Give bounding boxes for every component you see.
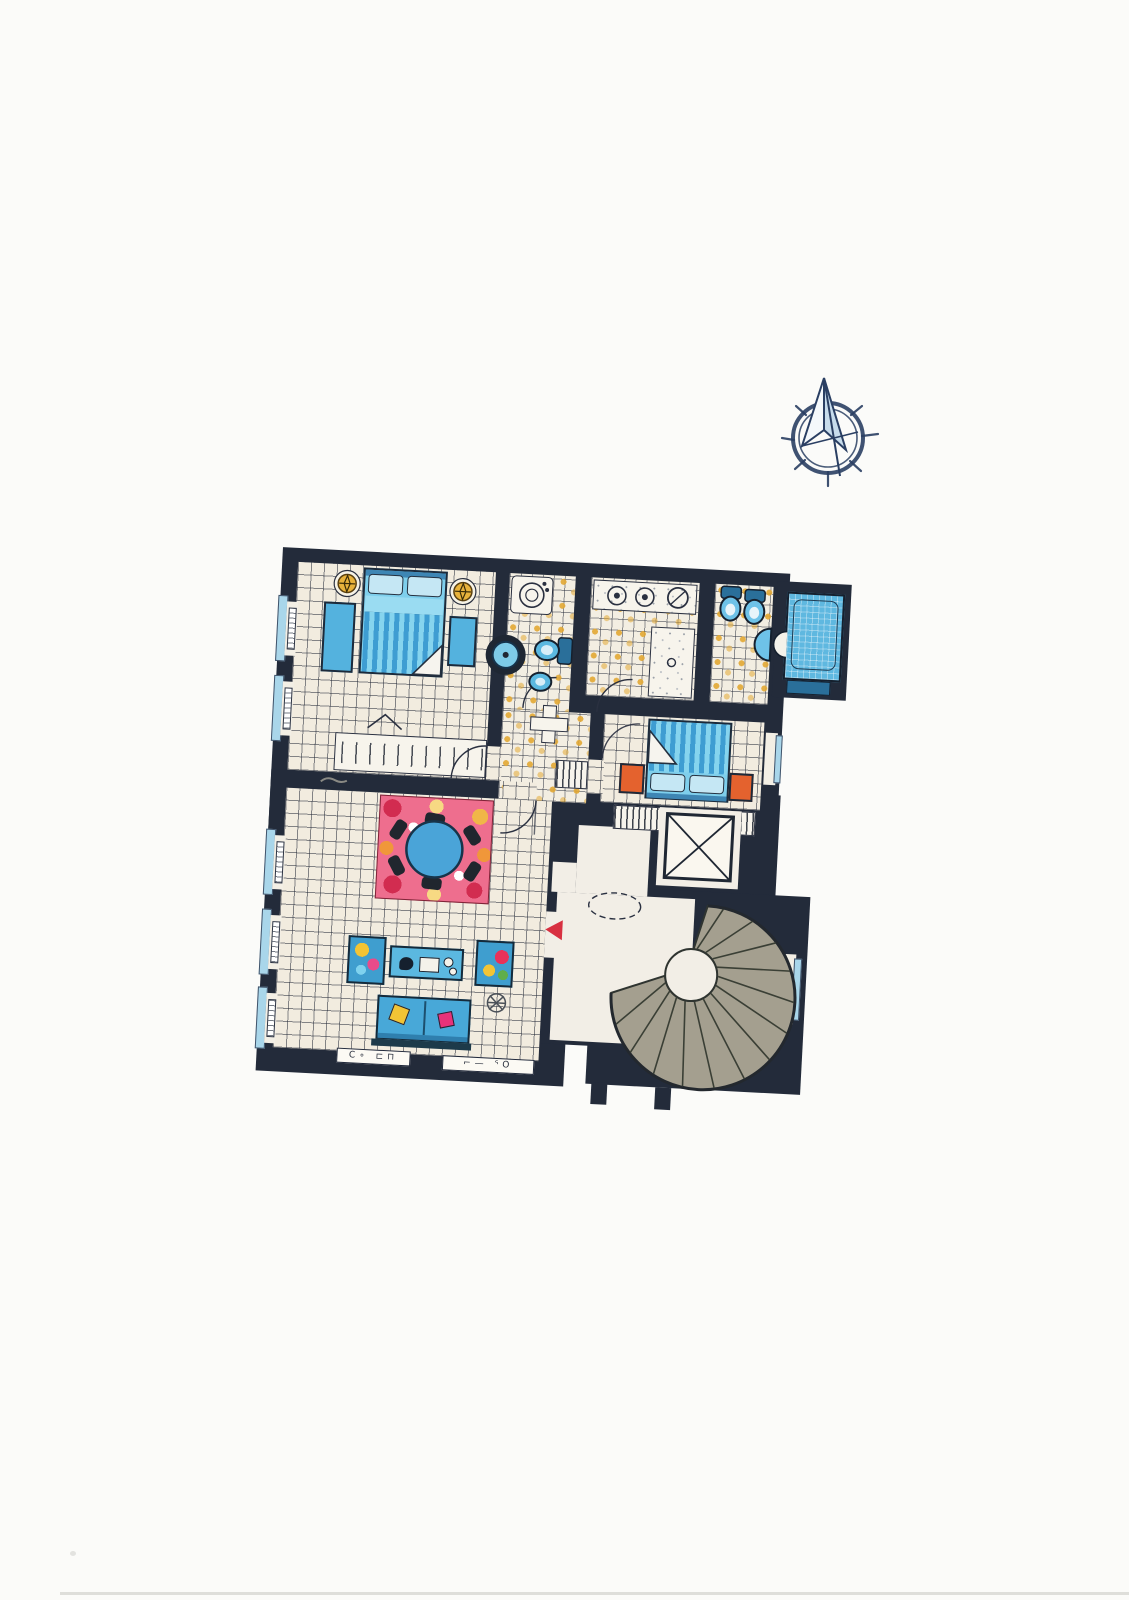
bed-2 [644,718,732,802]
bed-1 [358,567,447,677]
console-dark-item [399,957,414,971]
nightstand-1-left [321,601,357,673]
sofa-cushion-pink [437,1011,455,1029]
nightstand-1-right [447,616,478,667]
hall-column [529,704,569,744]
nightstand-2-left [619,763,646,794]
washing-machine [510,575,554,615]
wall-foot-2 [654,1087,671,1110]
floor-wc-2 [709,584,773,705]
sofa [375,995,471,1044]
floor-landing [550,892,696,1047]
media-console [389,945,465,981]
dresser [333,732,487,778]
compass-spokes [782,392,878,486]
wall-foot-1 [590,1082,607,1105]
floral-rug [375,795,494,905]
bed-1-pillow-left [368,574,404,596]
bed-2-duvet [649,721,730,775]
floor-corridor [575,825,650,897]
compass-ring-outer [793,403,863,473]
bathtub [783,592,846,683]
nightstand-2-right [728,773,753,802]
bathtub-inner-rim [790,599,839,671]
window-sill-6 [773,735,783,783]
scan-speck [70,1551,76,1556]
compass-rose [766,372,896,504]
door-gap-hall-living [502,781,537,801]
armchair-right [474,940,514,988]
shower-tray [648,626,696,698]
compass-ring-inner [799,409,857,467]
scanned-page: { "page": { "background": "#fbfbf9", "ki… [0,0,1129,1600]
hall-column-h [530,716,569,732]
hall-shelf [555,760,588,790]
bed-2-pillow-right [689,775,725,795]
sofa-seat-divider [423,1001,427,1035]
bed-1-pillow-right [407,576,443,598]
elevator-frame [656,807,742,889]
sofa-cushion-yellow [388,1003,410,1025]
vanity-counter [592,579,697,614]
floor-niche [551,862,577,893]
console-cup-2 [449,967,457,975]
door-gap-bedroom1 [485,746,503,781]
door-gap-living-landing [544,911,558,958]
floor-plan: C∘ ⊏⊓ ⌐— ᕐO [252,547,855,1121]
bed-2-pillow-left [650,773,686,793]
compass-needle [802,378,858,476]
armchair-left [346,935,386,985]
bathtub-step [786,680,831,696]
door-gap-bedroom2 [587,759,605,794]
scan-edge-artifact [60,1592,1129,1595]
console-cup-1 [443,957,454,968]
bed-1-duvet [362,611,443,675]
console-remote [419,957,440,973]
